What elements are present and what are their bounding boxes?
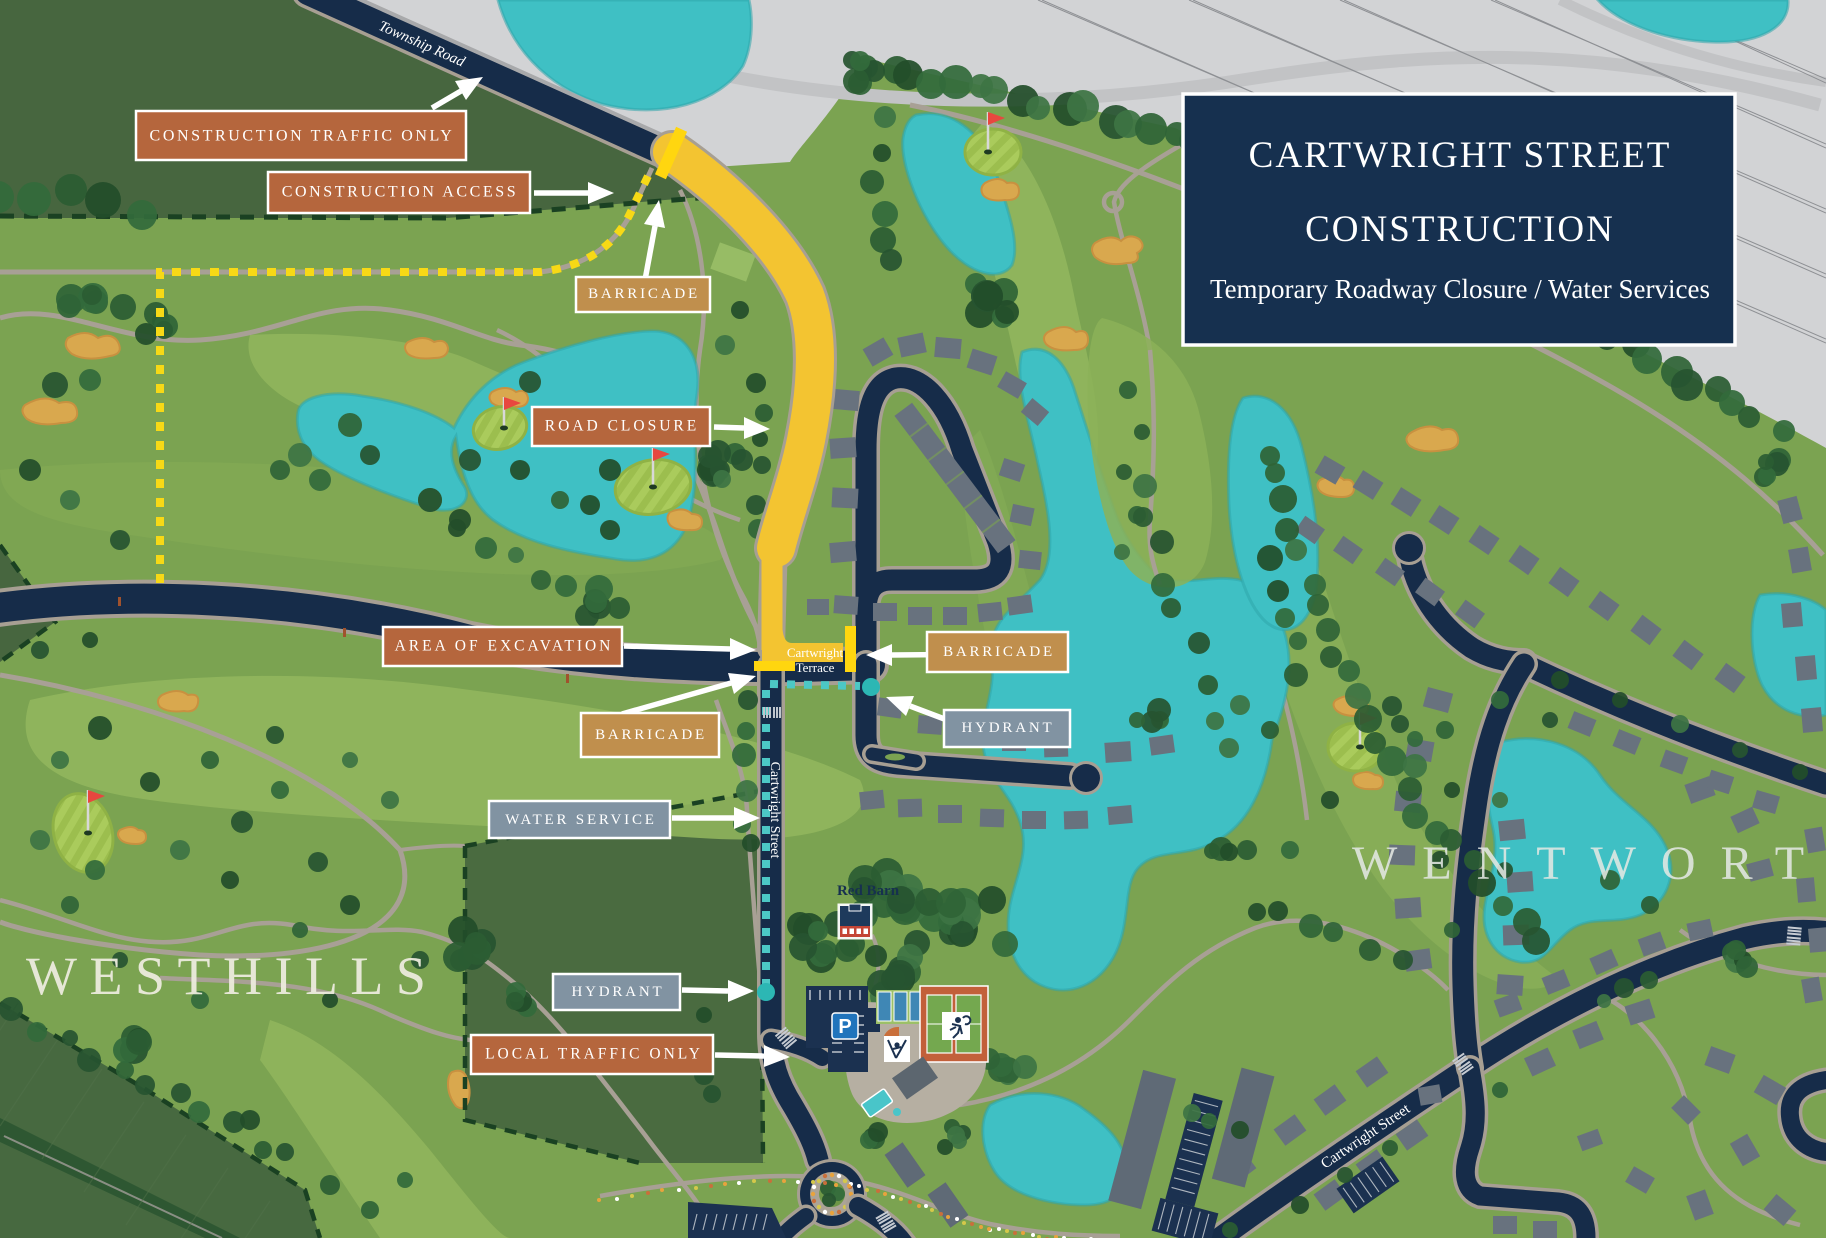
svg-text:AREA OF EXCAVATION: AREA OF EXCAVATION — [395, 638, 614, 655]
svg-text:CARTWRIGHT STREET: CARTWRIGHT STREET — [1249, 135, 1672, 176]
svg-text:Terrace: Terrace — [796, 660, 835, 675]
svg-text:HYDRANT: HYDRANT — [962, 720, 1055, 736]
svg-text:CONSTRUCTION: CONSTRUCTION — [1305, 209, 1615, 250]
svg-text:WATER SERVICE: WATER SERVICE — [505, 812, 656, 828]
svg-text:P: P — [838, 1016, 851, 1038]
svg-text:Red Barn: Red Barn — [837, 883, 900, 899]
svg-text:CONSTRUCTION TRAFFIC ONLY: CONSTRUCTION TRAFFIC ONLY — [150, 128, 455, 145]
svg-text:WENTWORTH: WENTWORTH — [1352, 837, 1826, 890]
svg-text:Temporary Roadway Closure / Wa: Temporary Roadway Closure / Water Servic… — [1210, 274, 1710, 304]
svg-text:Cartwright: Cartwright — [787, 645, 844, 660]
svg-text:HYDRANT: HYDRANT — [572, 984, 665, 1000]
svg-text:ROAD CLOSURE: ROAD CLOSURE — [545, 418, 699, 435]
svg-text:Cartwright Street: Cartwright Street — [767, 762, 782, 859]
svg-text:LOCAL TRAFFIC ONLY: LOCAL TRAFFIC ONLY — [485, 1046, 703, 1063]
svg-text:WESTHILLS: WESTHILLS — [26, 946, 438, 1006]
svg-text:BARRICADE: BARRICADE — [595, 727, 707, 743]
svg-text:CONSTRUCTION ACCESS: CONSTRUCTION ACCESS — [282, 184, 519, 201]
svg-text:BARRICADE: BARRICADE — [588, 286, 700, 302]
svg-text:BARRICADE: BARRICADE — [943, 644, 1055, 660]
